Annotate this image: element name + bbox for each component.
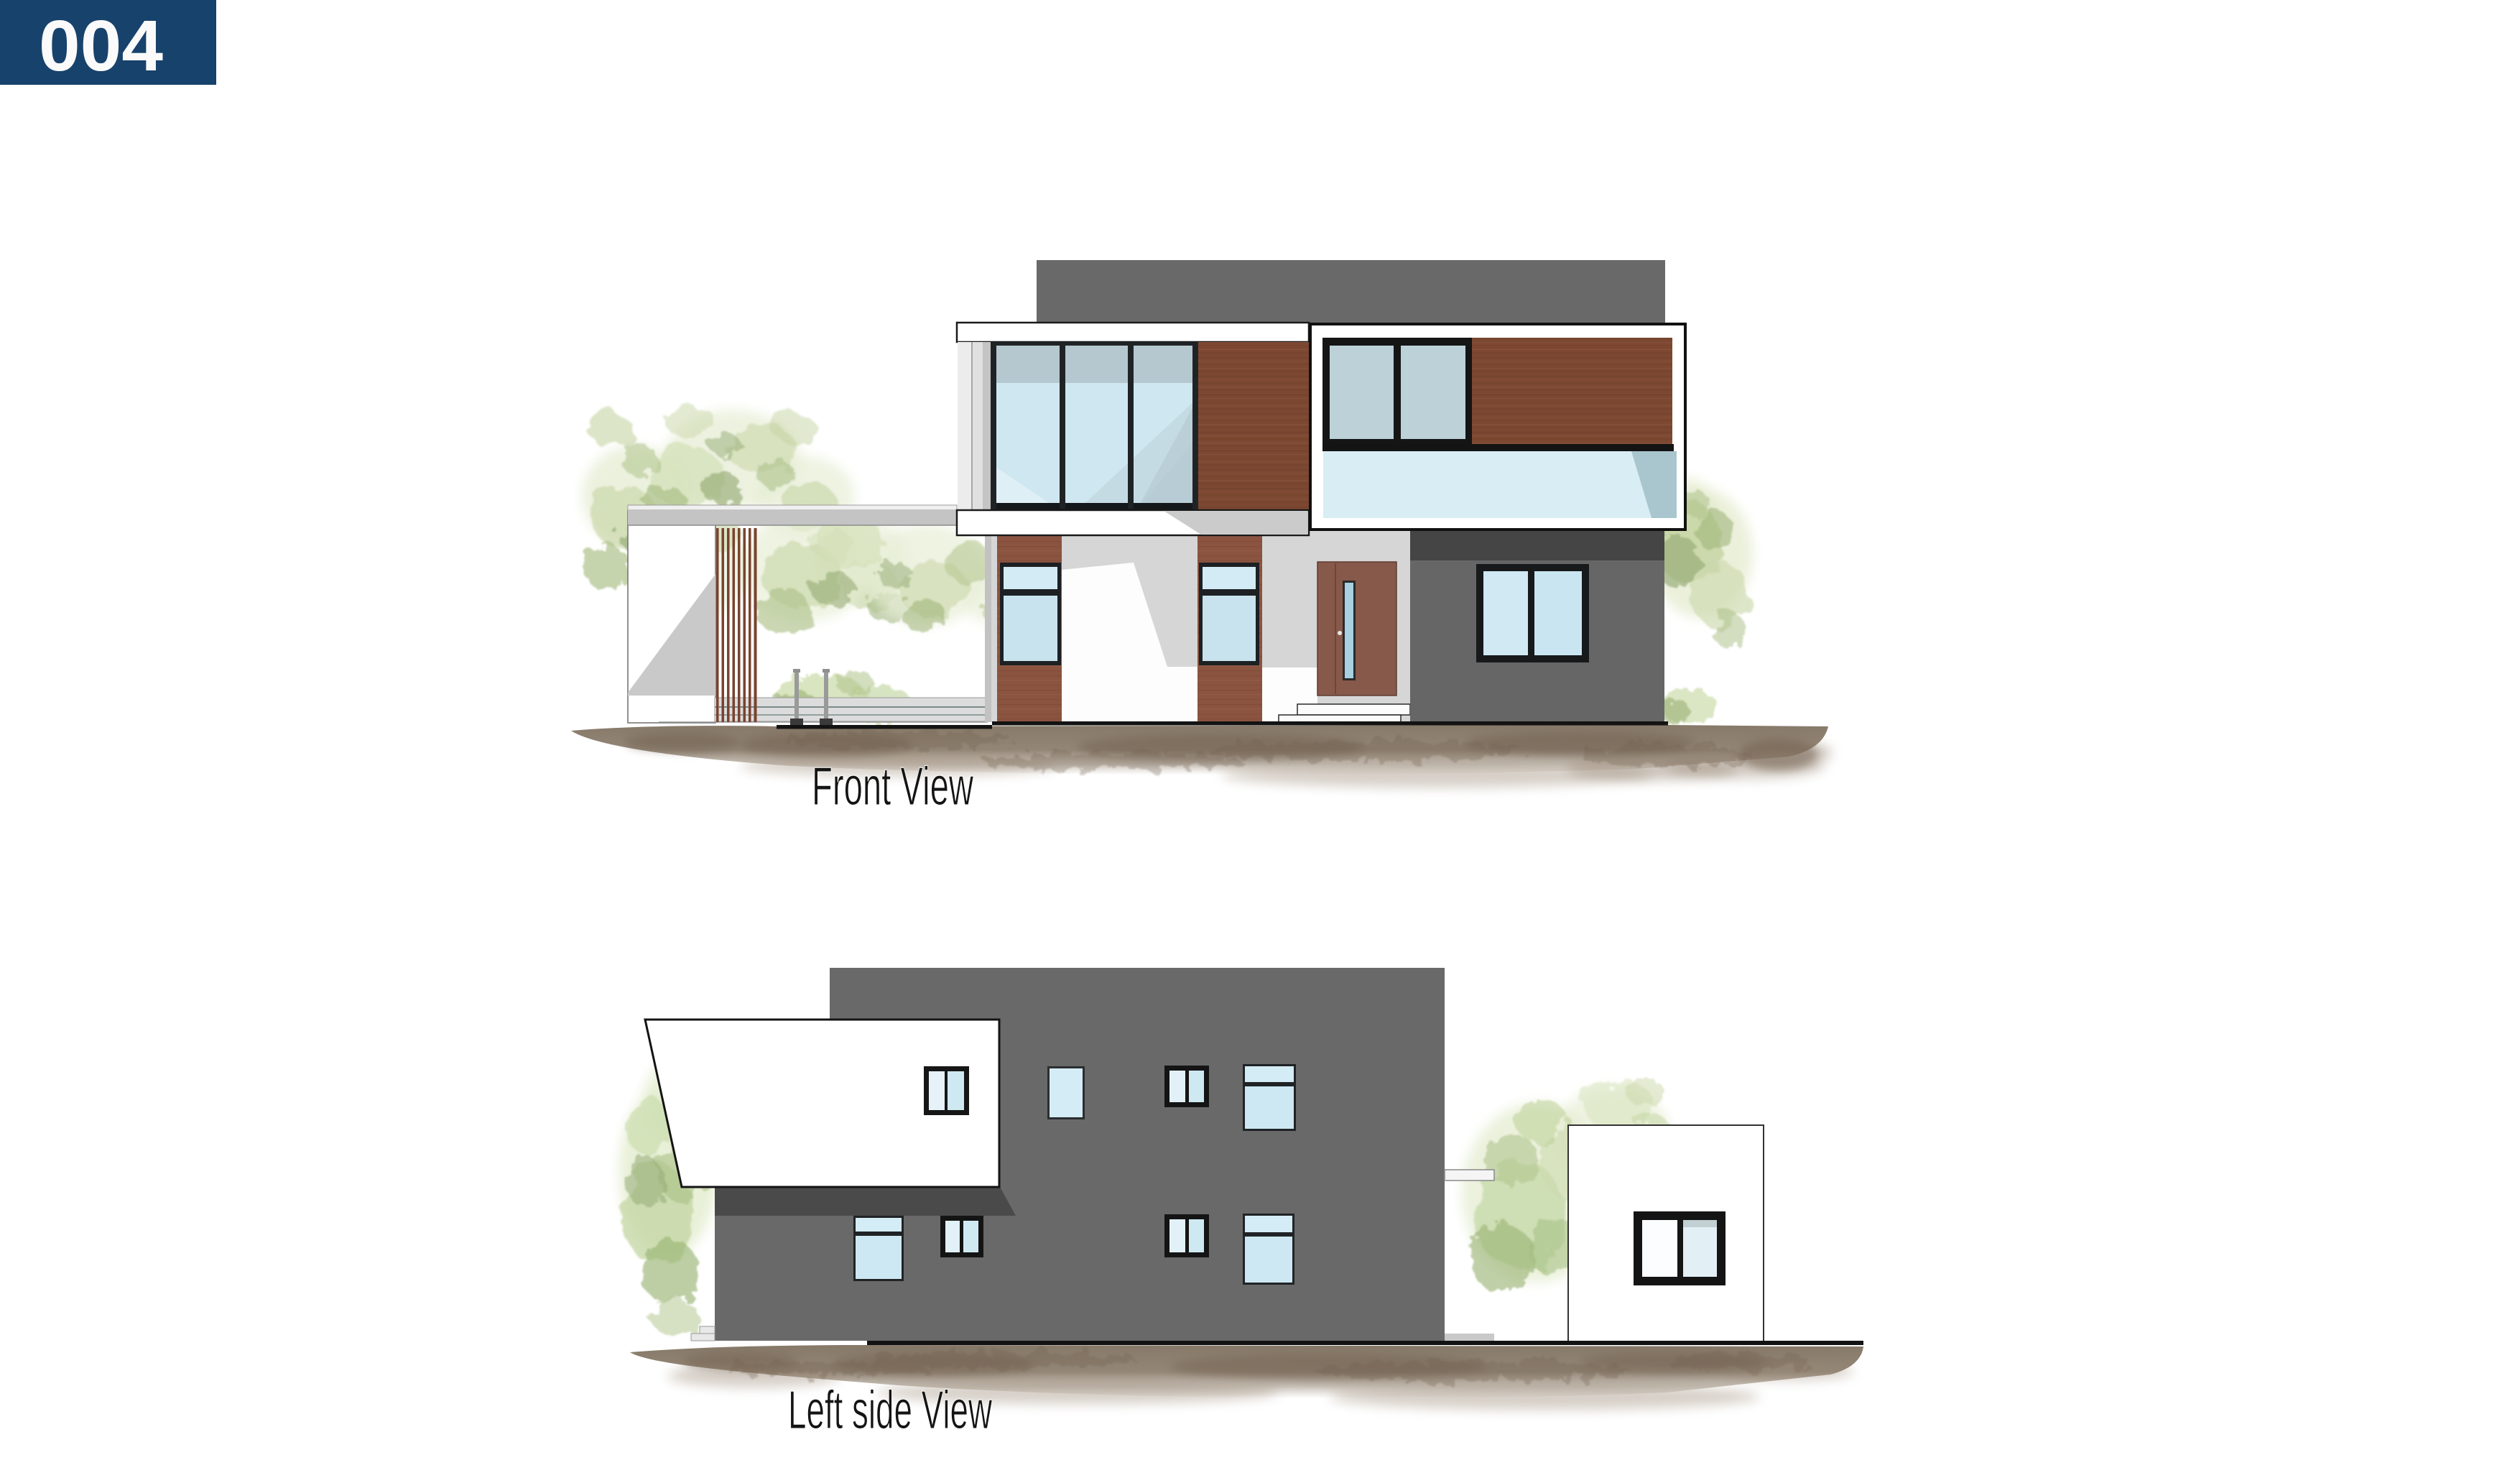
svg-text:004: 004 [39,6,163,86]
svg-text:Front View: Front View [812,756,974,816]
svg-text:Left side View: Left side View [788,1380,993,1440]
